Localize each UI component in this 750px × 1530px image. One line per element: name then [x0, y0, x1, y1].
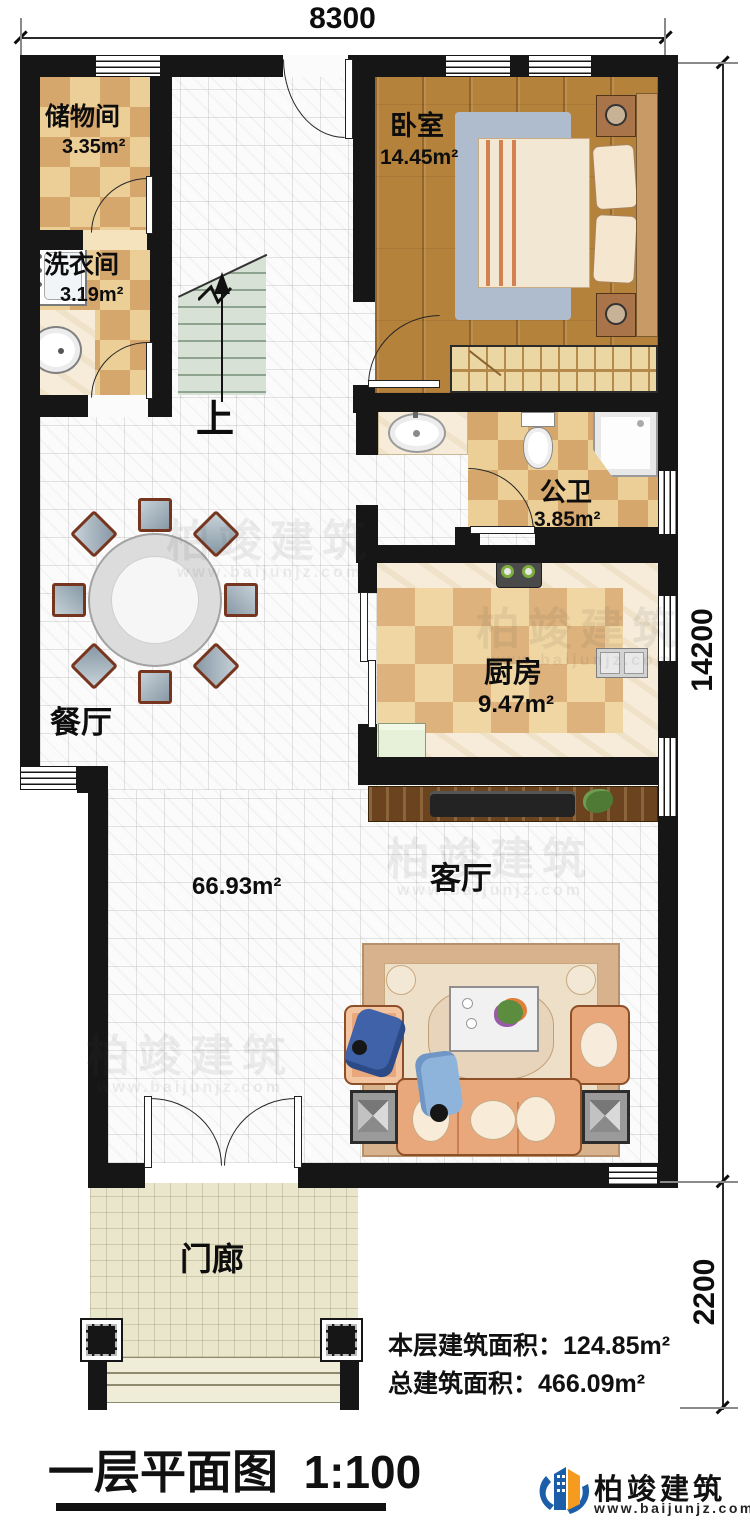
side-table-top [590, 1100, 620, 1132]
dining-chair [138, 670, 172, 704]
porch-label: 门廊 [180, 1242, 244, 1277]
window-kitchen [658, 595, 678, 662]
person-left-head [352, 1040, 367, 1055]
tv [430, 791, 575, 817]
window-living-bottom [608, 1166, 658, 1186]
storage-door-gap [83, 230, 147, 250]
total-area-label: 总建筑面积： [388, 1370, 538, 1398]
person-sofa-head [430, 1104, 448, 1122]
dim-ext [20, 18, 22, 55]
bed-headboard [636, 93, 658, 337]
dining-chair [52, 583, 86, 617]
porch-column-right [320, 1318, 363, 1362]
carpet-corner [566, 965, 596, 995]
total-area-text: 总建筑面积：466.09m² [388, 1364, 645, 1400]
porch-column-core [86, 1324, 117, 1356]
dim-top-line [20, 37, 666, 39]
side-table-left [350, 1090, 398, 1144]
wardrobe [450, 345, 658, 393]
plan-title-text: 一层平面图 [48, 1446, 278, 1498]
coffee-table-cup [466, 1018, 477, 1029]
wall-kitchen-left-a [358, 563, 377, 593]
bedroom-area: 14.45m² [380, 146, 458, 169]
bed-pillow-2 [592, 214, 638, 284]
stair-break-mark [198, 284, 238, 306]
porch-steps [103, 1357, 343, 1403]
coffee-table [449, 986, 539, 1052]
entry-door-leaf-right [294, 1096, 302, 1168]
dim-side-text: 14200 [686, 570, 720, 730]
kitchen-label: 厨房 [484, 658, 542, 690]
porch-column-left [80, 1318, 123, 1362]
dining-chair [224, 583, 258, 617]
nightstand-bottom-ornament [605, 303, 627, 325]
wall-bath-left-stub [356, 412, 378, 455]
wall-kitchen-bottom [358, 757, 658, 785]
side-table-top [358, 1100, 388, 1132]
bedroom-label: 卧室 [390, 112, 444, 142]
porch-post-left [88, 1360, 107, 1410]
wall-bedroom-bottom [353, 393, 658, 412]
laundry-door-gap [88, 395, 148, 417]
plan-title: 一层平面图 1:100 [48, 1436, 421, 1502]
brand-url: www.baijunjz.com [594, 1500, 750, 1516]
coffee-table-flowers [497, 1000, 523, 1024]
sofa-pillow [470, 1100, 516, 1140]
bed-stripe-pattern [486, 140, 516, 286]
bedroom-door-leaf [368, 380, 440, 388]
dim-ext [680, 1407, 738, 1409]
nightstand-top-ornament [605, 104, 627, 126]
wall-left-lower [88, 793, 108, 1188]
sofa-pillow [516, 1096, 556, 1142]
window-bedroom-2 [528, 55, 592, 77]
toilet-tank [521, 412, 555, 427]
toilet-bowl [523, 427, 553, 469]
wall-kitchen-top [358, 545, 658, 563]
dim-porch-text: 2200 [688, 1226, 722, 1358]
dining-label: 餐厅 [50, 706, 112, 740]
total-area-value: 466.09m² [538, 1370, 645, 1398]
stove-burner [501, 565, 514, 578]
wall-living-bottom-left [88, 1163, 145, 1188]
floor-plan-canvas: 储物间 3.35m² 洗衣间 3.19m² 卧室 14.45m² 公卫 3.85… [0, 0, 750, 1530]
side-table-right [582, 1090, 630, 1144]
armchair-right-cushion [580, 1022, 618, 1068]
dim-ext [664, 18, 666, 55]
laundry-area: 3.19m² [60, 284, 123, 306]
dim-ext [678, 62, 738, 64]
wall-left-upper [20, 55, 40, 766]
kitchen-area: 9.47m² [478, 692, 554, 718]
bed-pillow-1 [592, 144, 638, 211]
wall-left-corner-block [77, 766, 108, 793]
window-storage [95, 55, 161, 77]
dining-chair [138, 498, 172, 532]
title-underline [56, 1503, 386, 1511]
hall-top-door-leaf [345, 59, 353, 139]
storage-area: 3.35m² [62, 136, 125, 158]
wall-living-bottom-right [298, 1163, 658, 1188]
bathroom-label: 公卫 [540, 478, 592, 507]
living-label: 客厅 [430, 862, 492, 896]
laundry-sink-drain [58, 348, 64, 354]
kitchen-sink-bowl [624, 652, 644, 674]
storage-door-leaf [146, 176, 153, 234]
wall-bedroom-left [353, 55, 375, 302]
bathroom-area: 3.85m² [534, 508, 601, 531]
shower-drain [637, 420, 644, 427]
bathroom-sink-drain [413, 430, 420, 437]
dim-ext [660, 1181, 738, 1183]
living-area: 66.93m² [192, 874, 281, 900]
plan-scale: 1:100 [304, 1446, 422, 1498]
entry-door-leaf-left [144, 1096, 152, 1168]
dim-right-line [722, 63, 724, 1410]
laundry-door-leaf [146, 342, 153, 399]
stair-arrow-line [221, 292, 223, 402]
porch-post-right [340, 1360, 359, 1410]
kitchen-sink-bowl [600, 652, 620, 674]
stairs-up-label: 上 [196, 400, 234, 442]
dining-table-top [111, 556, 199, 644]
storage-label: 储物间 [45, 104, 120, 132]
floor-area-value: 124.85m² [563, 1332, 670, 1360]
window-living-right [658, 737, 678, 817]
dim-top-text: 8300 [20, 2, 665, 36]
wall-kitchen-left-b [358, 724, 377, 757]
floor-area-label: 本层建筑面积： [388, 1332, 563, 1360]
window-left-step [20, 766, 77, 790]
brand-logo-icon [536, 1460, 592, 1518]
bathroom-door-leaf [470, 526, 535, 534]
laundry-label: 洗衣间 [44, 252, 119, 280]
stove-burner [522, 565, 535, 578]
kitchen-slider-panel-1 [360, 592, 368, 662]
floor-area-text: 本层建筑面积：124.85m² [388, 1326, 670, 1362]
carpet-corner [386, 965, 416, 995]
kitchen-slider-panel-2 [368, 660, 376, 728]
window-bedroom-1 [445, 55, 511, 77]
porch-column-core [326, 1324, 357, 1356]
coffee-table-cup [462, 998, 473, 1009]
window-bathroom [658, 470, 678, 535]
